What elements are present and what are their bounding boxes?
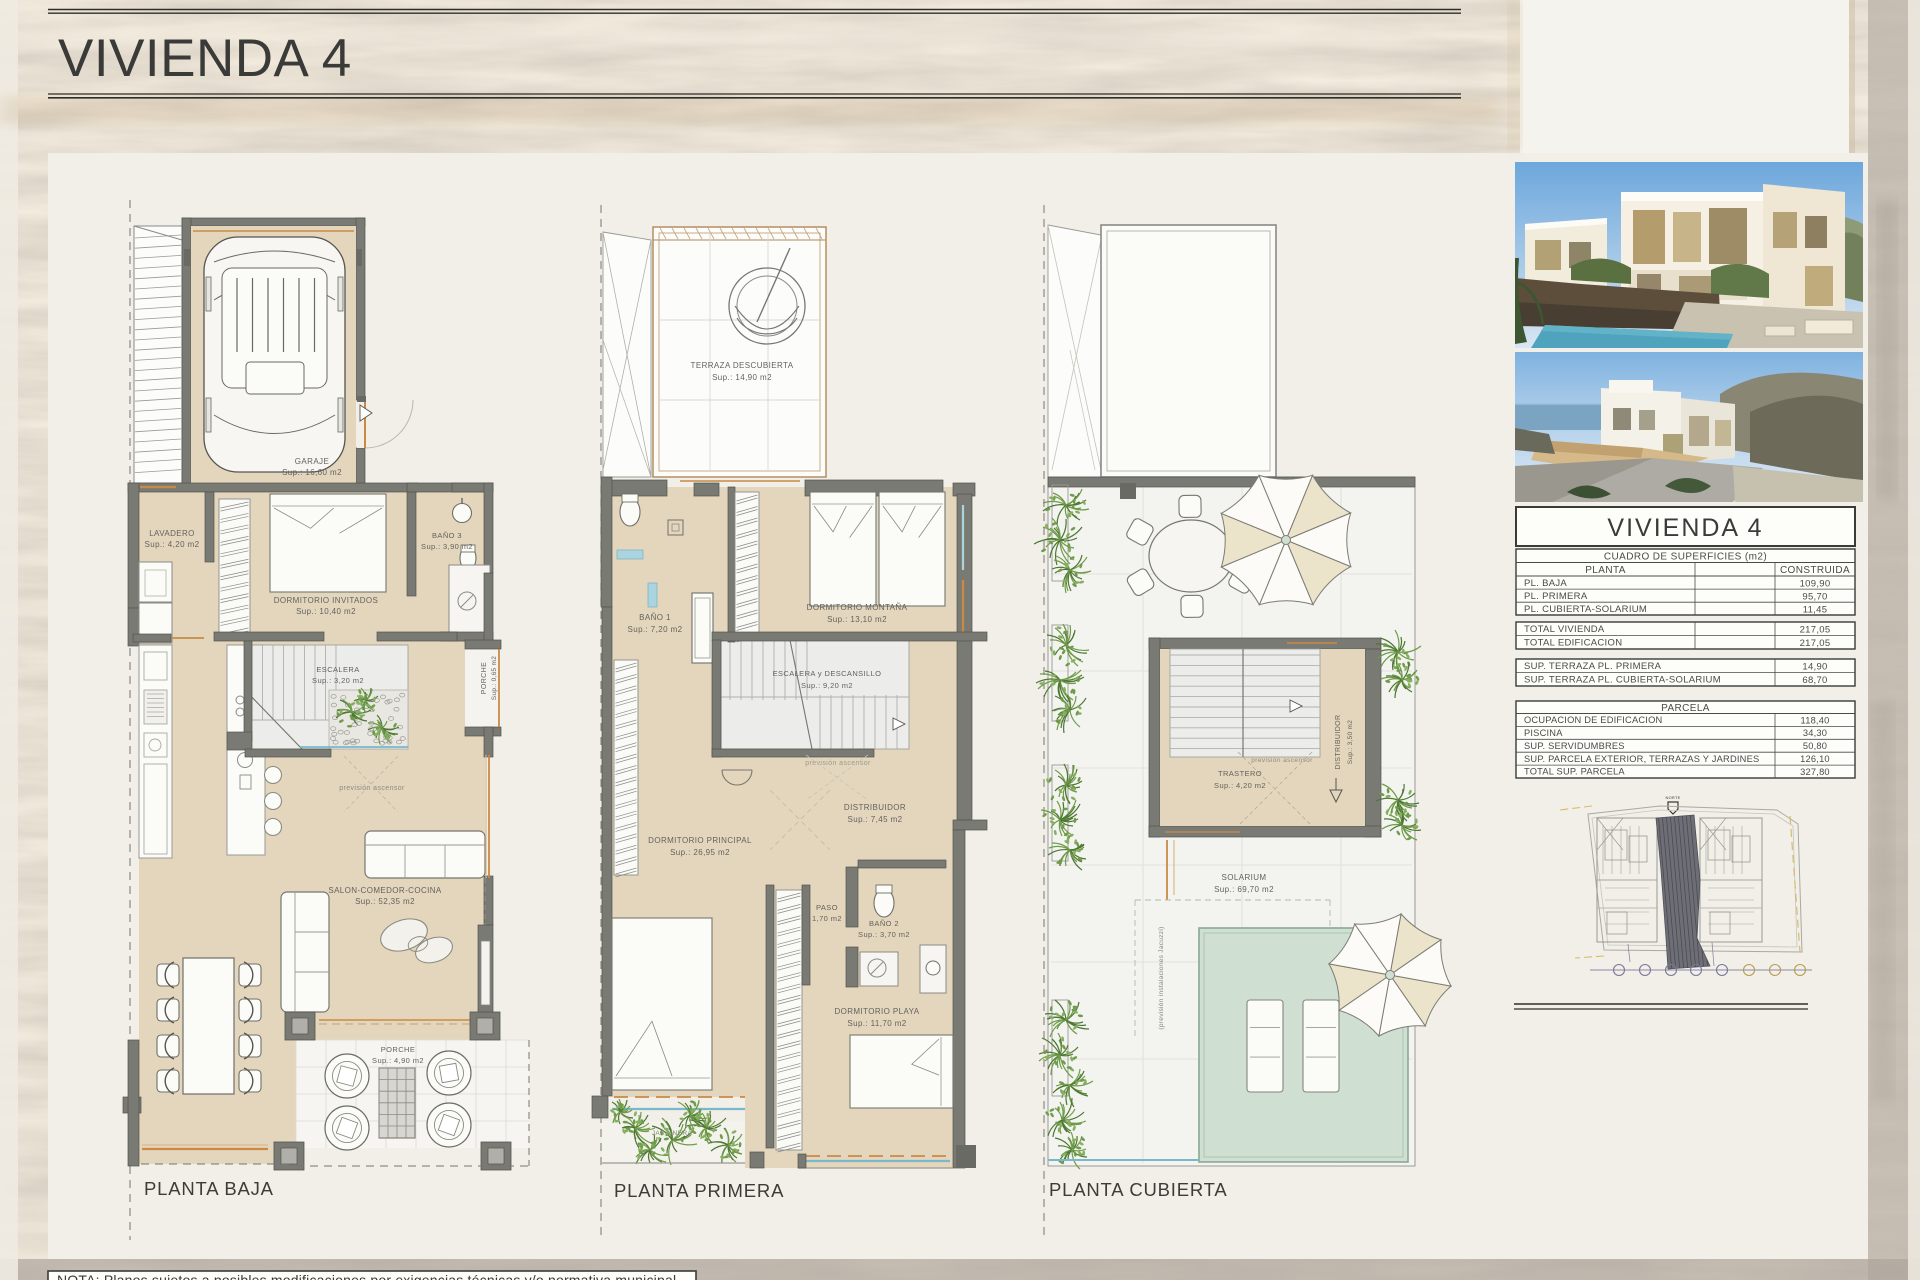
svg-text:previsión ascensor: previsión ascensor bbox=[805, 760, 871, 767]
svg-text:DORMITORIO PLAYA: DORMITORIO PLAYA bbox=[834, 1007, 919, 1016]
svg-text:109,90: 109,90 bbox=[1800, 578, 1831, 589]
svg-text:PASO: PASO bbox=[816, 903, 838, 912]
svg-text:BAÑO 1: BAÑO 1 bbox=[639, 613, 671, 622]
svg-text:Sup.: 26,95 m2: Sup.: 26,95 m2 bbox=[670, 848, 730, 857]
svg-text:Sup.: 10,40 m2: Sup.: 10,40 m2 bbox=[296, 607, 356, 616]
svg-text:GARAJE: GARAJE bbox=[295, 457, 329, 466]
svg-text:PORCHE: PORCHE bbox=[381, 1045, 416, 1054]
svg-text:SALON-COMEDOR-COCINA: SALON-COMEDOR-COCINA bbox=[328, 886, 442, 895]
svg-text:Sup.: 11,70 m2: Sup.: 11,70 m2 bbox=[847, 1019, 906, 1028]
svg-text:Sup.: 13,10 m2: Sup.: 13,10 m2 bbox=[827, 615, 887, 624]
svg-text:SOLARIUM: SOLARIUM bbox=[1222, 873, 1267, 882]
svg-text:DISTRIBUIDOR: DISTRIBUIDOR bbox=[1335, 715, 1342, 770]
svg-text:BAÑO 2: BAÑO 2 bbox=[869, 919, 899, 928]
svg-text:14,90: 14,90 bbox=[1802, 662, 1827, 673]
svg-text:217,05: 217,05 bbox=[1800, 625, 1831, 636]
svg-text:PLANTA: PLANTA bbox=[1585, 565, 1626, 576]
svg-text:SUP. TERRAZA PL. PRIMERA: SUP. TERRAZA PL. PRIMERA bbox=[1524, 661, 1662, 672]
svg-text:Sup.: 3,50 m2: Sup.: 3,50 m2 bbox=[1347, 720, 1354, 764]
svg-text:PL. PRIMERA: PL. PRIMERA bbox=[1524, 591, 1588, 602]
svg-text:34,30: 34,30 bbox=[1803, 728, 1827, 738]
svg-text:TOTAL VIVIENDA: TOTAL VIVIENDA bbox=[1524, 624, 1605, 635]
svg-text:Sup.: 4,20 m2: Sup.: 4,20 m2 bbox=[144, 540, 199, 549]
svg-text:ESCALERA y DESCANSILLO: ESCALERA y DESCANSILLO bbox=[773, 669, 882, 678]
svg-text:126,10: 126,10 bbox=[1800, 754, 1830, 764]
svg-text:SUP. SERVIDUMBRES: SUP. SERVIDUMBRES bbox=[1524, 741, 1625, 751]
svg-text:DISTRIBUIDOR: DISTRIBUIDOR bbox=[844, 803, 906, 812]
svg-text:previsión ascensor: previsión ascensor bbox=[1251, 757, 1313, 764]
svg-text:118,40: 118,40 bbox=[1801, 715, 1830, 725]
svg-text:CUADRO DE SUPERFICIES (m2): CUADRO DE SUPERFICIES (m2) bbox=[1604, 552, 1767, 563]
svg-text:PARCELA: PARCELA bbox=[1661, 703, 1710, 714]
svg-text:PISCINA: PISCINA bbox=[1524, 728, 1563, 738]
svg-text:217,05: 217,05 bbox=[1800, 638, 1831, 649]
svg-text:68,70: 68,70 bbox=[1802, 675, 1827, 686]
svg-text:50,80: 50,80 bbox=[1803, 741, 1827, 751]
svg-text:PL. CUBIERTA-SOLARIUM: PL. CUBIERTA-SOLARIUM bbox=[1524, 604, 1647, 615]
svg-text:11,45: 11,45 bbox=[1803, 605, 1828, 616]
svg-text:TOTAL SUP. PARCELA: TOTAL SUP. PARCELA bbox=[1524, 767, 1625, 777]
svg-text:Sup.: 9,20 m2: Sup.: 9,20 m2 bbox=[801, 681, 853, 690]
svg-text:327,80: 327,80 bbox=[1800, 767, 1830, 777]
svg-text:SUP. PARCELA EXTERIOR, TERRAZA: SUP. PARCELA EXTERIOR, TERRAZAS Y JARDIN… bbox=[1524, 754, 1759, 764]
svg-text:BAÑO 3: BAÑO 3 bbox=[432, 531, 462, 540]
svg-text:PLANTA CUBIERTA: PLANTA CUBIERTA bbox=[1049, 1179, 1228, 1200]
svg-text:DORMITORIO PRINCIPAL: DORMITORIO PRINCIPAL bbox=[648, 836, 752, 845]
svg-text:NORTE: NORTE bbox=[1666, 795, 1681, 800]
svg-text:NOTA: Planos sujetos a posible: NOTA: Planos sujetos a posibles modifica… bbox=[57, 1272, 680, 1280]
svg-text:Sup.: 3,20 m2: Sup.: 3,20 m2 bbox=[312, 676, 364, 685]
svg-text:1,70 m2: 1,70 m2 bbox=[812, 914, 842, 923]
svg-text:PLANTA BAJA: PLANTA BAJA bbox=[144, 1178, 274, 1199]
svg-text:JARDINERA: JARDINERA bbox=[652, 1130, 693, 1137]
svg-text:(previsión instalaciones Jacuz: (previsión instalaciones Jacuzzi) bbox=[1158, 926, 1165, 1029]
svg-text:DORMITORIO INVITADOS: DORMITORIO INVITADOS bbox=[274, 596, 379, 605]
svg-text:Sup.: 7,45 m2: Sup.: 7,45 m2 bbox=[847, 815, 902, 824]
svg-text:Sup.: 7,20 m2: Sup.: 7,20 m2 bbox=[627, 625, 682, 634]
svg-text:TOTAL EDIFICACION: TOTAL EDIFICACION bbox=[1524, 638, 1622, 649]
svg-text:Sup.: 4,20 m2: Sup.: 4,20 m2 bbox=[1214, 781, 1266, 790]
svg-text:OCUPACION DE EDIFICACION: OCUPACION DE EDIFICACION bbox=[1524, 715, 1662, 725]
svg-text:previsión ascensor: previsión ascensor bbox=[339, 785, 405, 792]
svg-text:Sup.: 52,35 m2: Sup.: 52,35 m2 bbox=[355, 897, 415, 906]
svg-text:PL. BAJA: PL. BAJA bbox=[1524, 578, 1567, 589]
svg-text:Sup.: 4,90 m2: Sup.: 4,90 m2 bbox=[372, 1056, 424, 1065]
svg-text:VIVIENDA 4: VIVIENDA 4 bbox=[58, 29, 352, 88]
svg-text:SUP. TERRAZA PL. CUBIERTA-SOLA: SUP. TERRAZA PL. CUBIERTA-SOLARIUM bbox=[1524, 675, 1721, 686]
svg-text:LAVADERO: LAVADERO bbox=[149, 529, 195, 538]
svg-text:ESCALERA: ESCALERA bbox=[316, 665, 359, 674]
svg-text:Sup.: 14,90 m2: Sup.: 14,90 m2 bbox=[712, 373, 772, 382]
svg-text:PLANTA PRIMERA: PLANTA PRIMERA bbox=[614, 1180, 784, 1201]
svg-text:PORCHE: PORCHE bbox=[481, 662, 488, 694]
svg-text:DORMITORIO MONTAÑA: DORMITORIO MONTAÑA bbox=[807, 603, 908, 612]
svg-text:Sup.: 3,90 m2: Sup.: 3,90 m2 bbox=[421, 542, 473, 551]
svg-text:VIVIENDA 4: VIVIENDA 4 bbox=[1607, 514, 1763, 542]
svg-text:Sup.: 16,60 m2: Sup.: 16,60 m2 bbox=[282, 468, 342, 477]
svg-text:Sup.: 3,70 m2: Sup.: 3,70 m2 bbox=[858, 930, 910, 939]
svg-text:TERRAZA DESCUBIERTA: TERRAZA DESCUBIERTA bbox=[691, 361, 794, 370]
svg-text:CONSTRUIDA: CONSTRUIDA bbox=[1780, 565, 1850, 576]
svg-text:Sup.: 0,65 m2: Sup.: 0,65 m2 bbox=[491, 656, 498, 700]
svg-text:95,70: 95,70 bbox=[1802, 592, 1827, 603]
svg-text:TRASTERO: TRASTERO bbox=[1218, 769, 1262, 778]
svg-text:Sup.: 69,70 m2: Sup.: 69,70 m2 bbox=[1214, 885, 1274, 894]
